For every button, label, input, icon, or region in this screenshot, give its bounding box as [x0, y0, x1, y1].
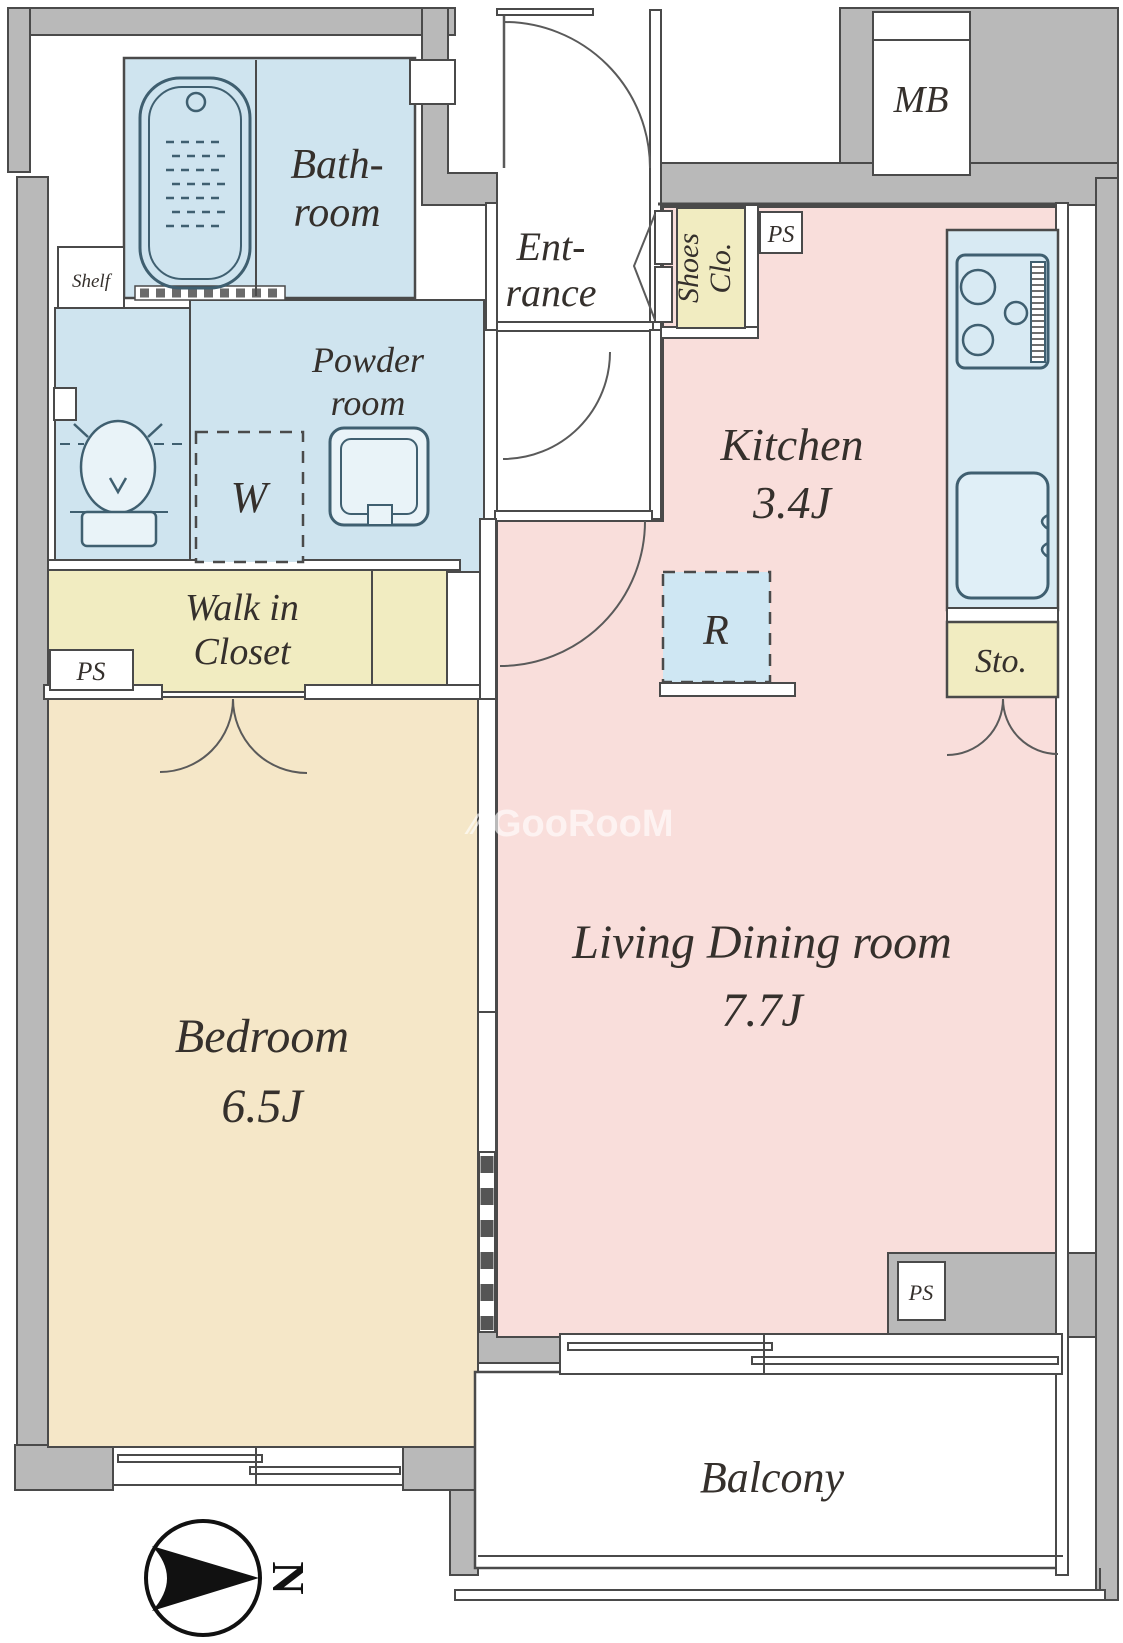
compass: N — [146, 1521, 314, 1635]
floor-plan-page: Bath- room Powder room Walk in Closet Be… — [0, 0, 1123, 1643]
kitchen-label-line2: 3.4J — [752, 477, 834, 528]
shoes-closet-door-leaf — [655, 211, 672, 264]
ldk-window — [560, 1334, 1062, 1374]
storage-label: Sto. — [975, 643, 1027, 680]
kitchen-sink-icon — [957, 473, 1048, 598]
kitchen-label-line1: Kitchen — [719, 419, 863, 470]
bath-duct — [410, 60, 455, 104]
pipe-space-bottom-label: PS — [908, 1280, 933, 1305]
walk-in-closet-label-line2: Closet — [193, 631, 292, 673]
living-dining-label-line1: Living Dining room — [571, 916, 952, 969]
living-dining-label-line2: 7.7J — [721, 984, 805, 1037]
sink-icon — [330, 428, 428, 525]
bathroom-label-line2: room — [293, 190, 380, 236]
floor-plan-svg: Bath- room Powder room Walk in Closet Be… — [0, 0, 1123, 1643]
compass-arrow-icon — [152, 1546, 259, 1611]
powder-room-label-line2: room — [331, 383, 406, 423]
shelf-label: Shelf — [72, 271, 113, 292]
compass-north-label: N — [263, 1561, 314, 1594]
shoes-closet-label-line2: Clo. — [704, 243, 737, 294]
kitchen-counter — [947, 230, 1058, 624]
bathroom-label-line1: Bath- — [290, 142, 383, 188]
shoes-closet-label-line1: Shoes — [672, 233, 705, 303]
entrance-door-arc — [504, 22, 650, 168]
bedroom-label-line1: Bedroom — [175, 1010, 349, 1063]
pipe-space-closet-label: PS — [76, 657, 106, 686]
entrance-label-line2: rance — [505, 270, 596, 315]
balcony-label: Balcony — [700, 1453, 845, 1502]
washer-label: W — [231, 473, 271, 522]
entrance-label-line1: Ent- — [516, 224, 586, 269]
powder-room-label-line1: Powder — [311, 340, 425, 380]
walk-in-closet-label-line1: Walk in — [185, 587, 299, 629]
bedroom-label-line2: 6.5J — [221, 1080, 305, 1133]
balcony-railing — [455, 1590, 1105, 1600]
shoes-closet-door-leaf — [655, 267, 672, 322]
refrigerator-label: R — [702, 608, 729, 654]
bedroom-floor — [48, 697, 478, 1447]
watermark: ⁄⁄ GooRooM — [464, 803, 674, 845]
watermark-text: GooRooM — [492, 803, 674, 845]
pipe-space-top-label: PS — [767, 222, 795, 248]
meter-box-label: MB — [893, 79, 949, 121]
powder-room-door-arc — [503, 352, 610, 459]
